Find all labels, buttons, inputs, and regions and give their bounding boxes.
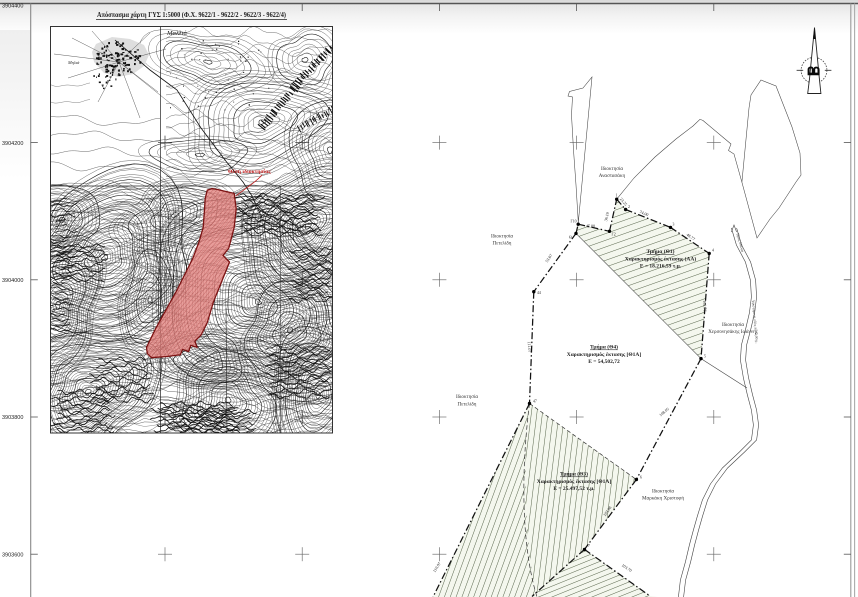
svg-text:3: 3 — [673, 223, 675, 227]
svg-text:Χαρακτηρισμός έκτασης [Θ1Α]: Χαρακτηρισμός έκτασης [Θ1Α] — [537, 477, 612, 485]
svg-text:Μαρκάκη Χριστοφή: Μαρκάκη Χριστοφή — [642, 496, 684, 502]
svg-text:Χερσονησάκης Ιωάννης: Χερσονησάκης Ιωάννης — [708, 329, 758, 335]
svg-text:Μηλιά: Μηλιά — [67, 60, 80, 65]
svg-text:Χαρακτηρισμός έκτασης [Θ1Α]: Χαρακτηρισμός έκτασης [Θ1Α] — [567, 350, 642, 358]
svg-text:Πετελίδη: Πετελίδη — [493, 241, 512, 247]
svg-text:Χαρακτηρισμός έκτασης (ΑΑ): Χαρακτηρισμός έκτασης (ΑΑ) — [625, 255, 697, 263]
svg-text:Αναστασάκη: Αναστασάκη — [599, 173, 626, 179]
svg-text:Μαλλιά: Μαλλιά — [166, 30, 187, 37]
svg-text:3904000: 3904000 — [2, 278, 23, 284]
svg-text:Τμήμα (Θ4): Τμήμα (Θ4) — [590, 343, 618, 351]
svg-text:44: 44 — [537, 291, 541, 295]
svg-text:Ιδιοκτησία: Ιδιοκτησία — [722, 322, 744, 328]
svg-text:Ε = 18.216,59 τ.μ.: Ε = 18.216,59 τ.μ. — [640, 264, 682, 270]
svg-text:2: 2 — [628, 205, 630, 209]
svg-text:Θ: Θ — [569, 236, 572, 240]
svg-text:Θέση ιδιοκτησίας: Θέση ιδιοκτησίας — [228, 167, 271, 175]
svg-text:Ιδιοκτησία: Ιδιοκτησία — [491, 234, 513, 240]
svg-text:5: 5 — [704, 355, 706, 359]
svg-text:Ιδιοκτησία: Ιδιοκτησία — [456, 394, 478, 400]
svg-text:Τμήμα (Θ3): Τμήμα (Θ3) — [560, 470, 588, 478]
svg-text:Ιδιοκτησία: Ιδιοκτησία — [601, 166, 623, 172]
svg-text:Πετελίδη: Πετελίδη — [458, 402, 477, 408]
svg-text:3904400: 3904400 — [2, 4, 23, 10]
svg-text:Ιδιοκτησία: Ιδιοκτησία — [652, 489, 674, 495]
svg-text:3904200: 3904200 — [2, 141, 23, 147]
svg-text:6: 6 — [640, 476, 642, 480]
svg-text:Απόσπασμα χάρτη ΓΥΣ 1:5000 (Φ.: Απόσπασμα χάρτη ΓΥΣ 1:5000 (Φ.Χ. 9622/1 … — [97, 11, 286, 19]
svg-text:Τμήμα (Θ1): Τμήμα (Θ1) — [647, 247, 675, 255]
svg-text:111.07: 111.07 — [527, 341, 532, 352]
svg-text:47: 47 — [533, 400, 537, 404]
svg-text:3903600: 3903600 — [2, 552, 23, 558]
svg-text:45.00: 45.00 — [586, 224, 595, 229]
svg-text:7: 7 — [588, 544, 590, 548]
svg-text:4: 4 — [712, 249, 714, 253]
svg-text:Ε = 25.497,52 τ.μ.: Ε = 25.497,52 τ.μ. — [553, 486, 595, 492]
svg-text:Ε = 54,502,72: Ε = 54,502,72 — [588, 359, 620, 365]
svg-text:3903800: 3903800 — [2, 415, 23, 421]
svg-text:102.76: 102.76 — [702, 300, 708, 312]
svg-text:1: 1 — [616, 194, 618, 198]
svg-text:Γ2: Γ2 — [612, 233, 616, 237]
svg-text:Γ10: Γ10 — [571, 220, 577, 224]
